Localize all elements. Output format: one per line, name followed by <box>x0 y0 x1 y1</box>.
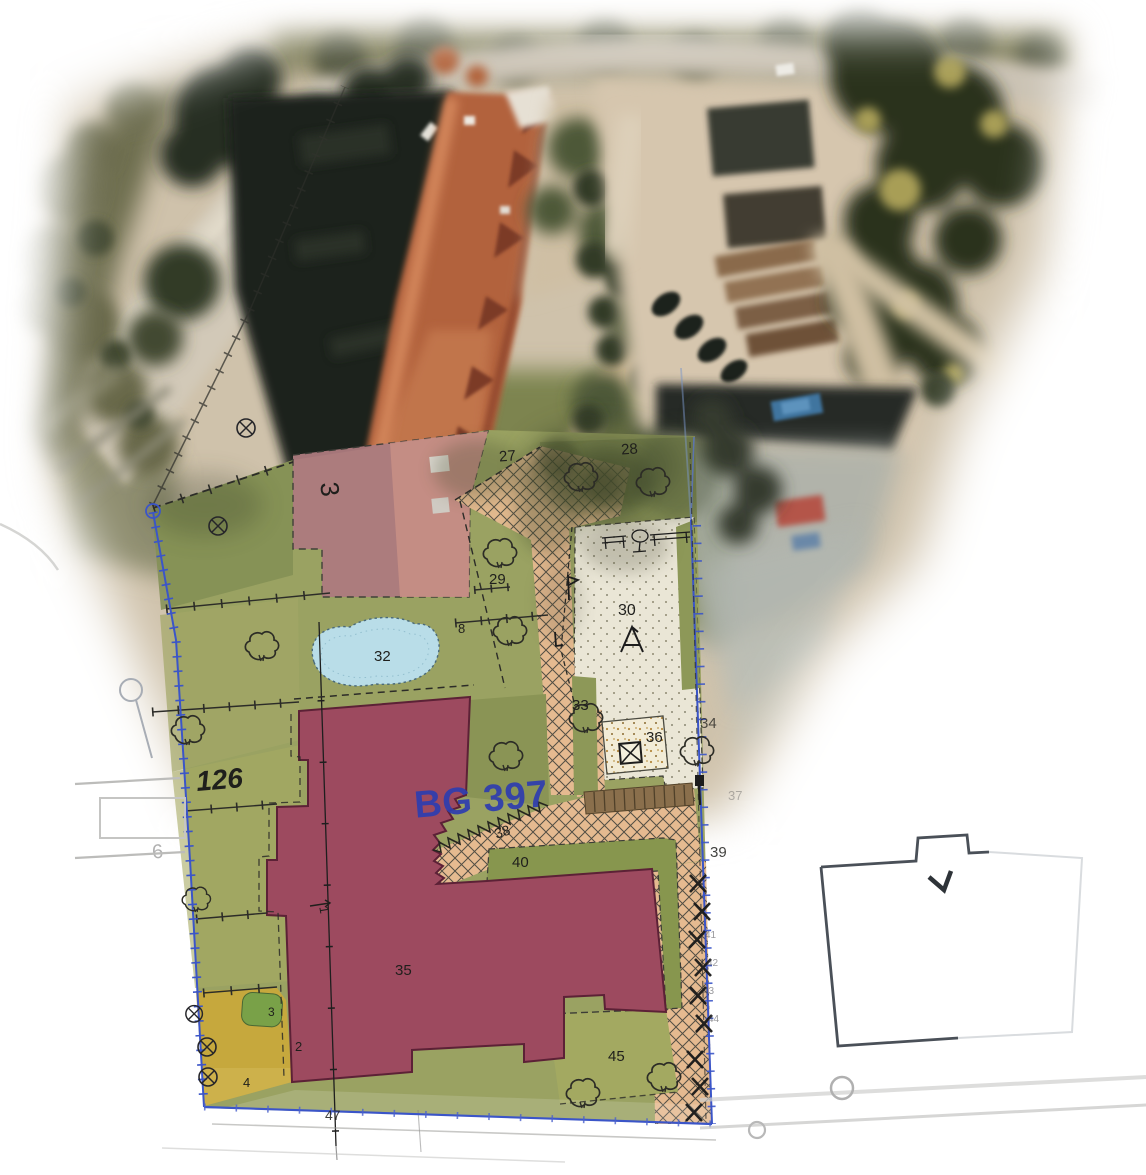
svg-text:32: 32 <box>374 648 391 665</box>
svg-text:8: 8 <box>458 621 465 636</box>
svg-text:30: 30 <box>618 602 636 619</box>
svg-text:33: 33 <box>572 697 589 714</box>
svg-text:28: 28 <box>621 440 639 458</box>
svg-text:29: 29 <box>489 571 506 588</box>
svg-text:40: 40 <box>512 854 529 871</box>
svg-text:37: 37 <box>728 788 742 803</box>
svg-text:39: 39 <box>710 844 727 861</box>
svg-text:44: 44 <box>708 1014 720 1025</box>
svg-text:42: 42 <box>707 958 719 969</box>
svg-text:43: 43 <box>703 986 715 997</box>
svg-text:45: 45 <box>608 1048 625 1065</box>
svg-text:41: 41 <box>705 930 717 941</box>
svg-text:4: 4 <box>243 1075 250 1090</box>
svg-text:34: 34 <box>700 715 717 732</box>
svg-text:35: 35 <box>395 962 412 979</box>
svg-text:3: 3 <box>268 1005 275 1019</box>
svg-text:36: 36 <box>646 729 663 746</box>
svg-text:27: 27 <box>499 447 517 465</box>
svg-text:2: 2 <box>295 1039 302 1054</box>
svg-text:126: 126 <box>195 762 245 797</box>
svg-text:47: 47 <box>325 1107 341 1123</box>
